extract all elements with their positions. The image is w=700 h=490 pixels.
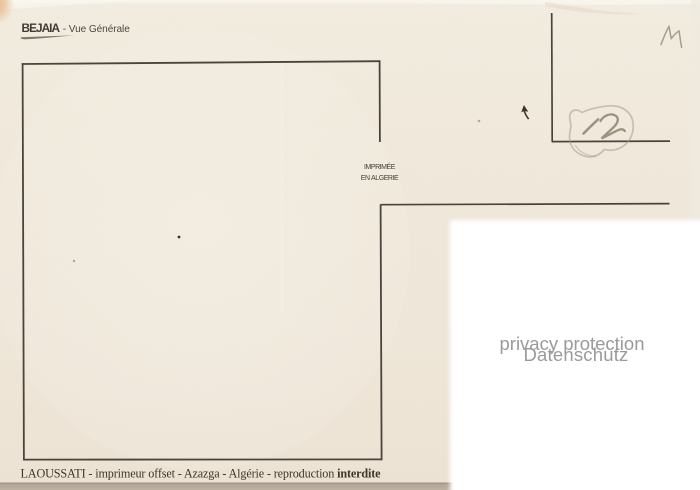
svg-text:BEJAIA: BEJAIA — [22, 21, 61, 35]
svg-text:LAOUSSATI - imprimeur offset -: LAOUSSATI - imprimeur offset - Azazga - … — [21, 467, 382, 481]
svg-text:IMPRIMÉE: IMPRIMÉE — [364, 162, 396, 171]
svg-text:EN ALGERIE: EN ALGERIE — [361, 175, 399, 182]
svg-text:- Vue Générale: - Vue Générale — [63, 24, 130, 35]
